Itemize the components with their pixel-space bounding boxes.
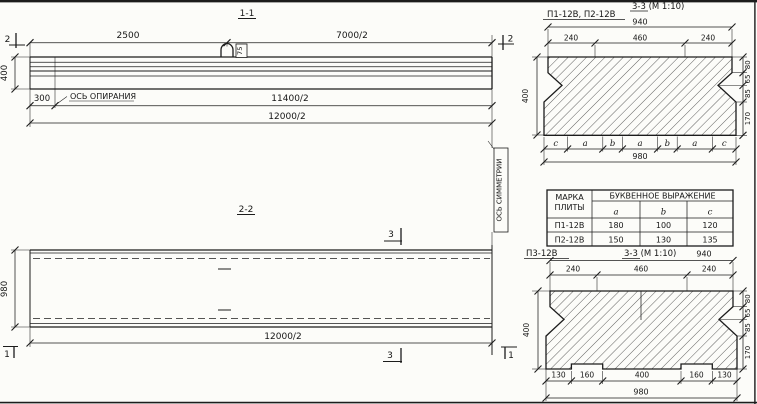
dim-240-right-top: 240 [701, 34, 716, 43]
dim-85-top: 85 [744, 89, 752, 98]
dim-980-left-label: 980 [0, 281, 10, 297]
dim-170-bottom: 170 [744, 346, 752, 359]
plates-top-label: П1-12В, П2-12В [547, 10, 616, 20]
table-row: П1-12В 180 100 120 [555, 221, 718, 230]
section-3-3-bottom-title: 3-3 (М 1:10) [624, 249, 676, 259]
symmetry-axis: ОСЬ СИММЕТРИИ [488, 127, 508, 246]
dim-400-mid: 400 [635, 371, 650, 380]
letter-a-3: a [692, 139, 697, 149]
dimension-table: МАРКА ПЛИТЫ БУКВЕННОЕ ВЫРАЖЕНИЕ a b c П1… [547, 190, 733, 246]
cut-marker-3-bottom: 3 [383, 348, 402, 363]
cut-marker-2-left: 2 [5, 33, 25, 48]
letter-c-1: c [553, 139, 558, 149]
dim-12000-2-top: 12000/2 [268, 112, 305, 122]
dim-400-left: 400 [0, 54, 30, 93]
dim-line-top: 2500 7000/2 [27, 31, 496, 127]
section-1-1-title: 1-1 [240, 9, 255, 19]
cut-marker-3-bottom-label: 3 [387, 351, 393, 361]
dim-940-top-label: 940 [632, 18, 647, 27]
section-3-3-top-title: 3-3 (М 1:10) [632, 2, 684, 12]
dim-300: 300 [34, 94, 50, 104]
cross-section-top-body [544, 57, 736, 135]
cut-marker-2-right: 2 [498, 35, 514, 51]
cut-marker-1-right: 1 [501, 347, 517, 361]
dim-160-r: 160 [689, 371, 704, 380]
drawing-canvas: 1-1 75 2500 7000/2 [0, 0, 757, 404]
section-3-3-bottom-view: П3-12В 3-3 (М 1:10) 940 240 460 240 [522, 249, 752, 402]
table-row: П2-12В 150 130 135 [555, 236, 718, 245]
table-row1-b: 100 [656, 221, 671, 230]
table-row1-mark: П1-12В [555, 221, 585, 230]
dim-80-top: 80 [744, 60, 752, 69]
symmetry-axis-label: ОСЬ СИММЕТРИИ [496, 158, 504, 221]
dim-130-l: 130 [551, 371, 566, 380]
dim-460-bottom: 460 [634, 265, 649, 274]
slab-plan-outline [30, 245, 492, 355]
hook-position-label: 75 [236, 47, 244, 55]
dim-240-460-240-bottom: 240 460 240 [547, 262, 737, 291]
table-row2-a: 150 [608, 236, 623, 245]
table-sub-b: b [661, 208, 666, 218]
table-col2-header: БУКВЕННОЕ ВЫРАЖЕНИЕ [609, 192, 715, 201]
dim-130-r: 130 [717, 371, 732, 380]
dim-11400-2: 11400/2 [271, 94, 308, 104]
cross-section-bottom-body [546, 291, 737, 369]
dim-980-left: 980 [0, 247, 30, 331]
dim-line-12000-top: 12000/2 [27, 112, 496, 127]
dim-940-bottom-label: 940 [696, 250, 711, 259]
dim-980-bottom-section-label: 980 [633, 388, 648, 397]
dim-line-12000-bottom: 12000/2 [27, 327, 496, 347]
dim-240-left-bottom: 240 [566, 265, 581, 274]
table-row1-c: 120 [702, 221, 717, 230]
dim-240-460-240-top: 240 460 240 [545, 29, 736, 57]
cut-marker-3-top: 3 [384, 228, 402, 245]
dim-460-top: 460 [633, 34, 648, 43]
dim-65-bottom: 65 [744, 309, 752, 318]
blueprint-page: 1-1 75 2500 7000/2 [0, 0, 757, 404]
cut-marker-1-left-label: 1 [4, 350, 10, 360]
cut-marker-1-right-label: 1 [508, 351, 514, 361]
table-sub-c: c [708, 208, 713, 218]
section-1-1-view: 1-1 75 2500 7000/2 [0, 9, 514, 127]
dim-400-left-label: 400 [0, 65, 10, 81]
table-row2-b: 130 [656, 236, 671, 245]
table-sub-a: a [613, 208, 618, 218]
table-col1-header-l2: ПЛИТЫ [555, 203, 585, 212]
dim-170-top: 170 [744, 112, 752, 125]
cut-marker-3-top-label: 3 [388, 230, 394, 240]
dim-400-bottom-section-label: 400 [522, 323, 531, 338]
table-row2-c: 135 [702, 236, 717, 245]
dim-240-left-top: 240 [564, 34, 579, 43]
letter-a-2: a [637, 139, 642, 149]
letter-a-1: a [583, 139, 588, 149]
letter-c-2: c [722, 139, 727, 149]
dim-980-bottom-section: 980 [543, 388, 741, 402]
dim-80-bottom: 80 [744, 294, 752, 303]
cut-marker-1-left: 1 [3, 347, 18, 361]
dim-240-right-bottom: 240 [702, 265, 717, 274]
dim-400-top-section-label: 400 [521, 89, 530, 104]
table-col1-header-l1: МАРКА [555, 193, 584, 202]
dim-65-top: 65 [744, 75, 752, 84]
support-axis-callout: ОСЬ ОПИРАНИЯ [56, 92, 136, 105]
dim-12000-2-bottom: 12000/2 [264, 332, 301, 342]
table-row2-mark: П2-12В [555, 236, 585, 245]
section-3-3-top-view: П1-12В, П2-12В 3-3 (М 1:10) 940 240 460 … [521, 2, 752, 166]
dim-160-l: 160 [580, 371, 595, 380]
section-2-2-view: 2-2 3 980 [0, 205, 517, 363]
letter-b-2: b [665, 139, 670, 149]
dim-85-bottom: 85 [744, 323, 752, 332]
support-axis-label: ОСЬ ОПИРАНИЯ [70, 92, 136, 101]
section-2-2-title: 2-2 [239, 205, 254, 215]
dim-7000-2: 7000/2 [336, 31, 368, 41]
letter-b-1: b [610, 139, 615, 149]
dim-2500: 2500 [117, 31, 140, 41]
letter-dims-row: c a b a b a c [541, 137, 740, 153]
dim-980-top-section-label: 980 [632, 152, 647, 161]
cut-marker-2-left-label: 2 [5, 35, 11, 45]
cut-marker-2-right-label: 2 [508, 35, 514, 45]
table-row1-a: 180 [608, 221, 623, 230]
